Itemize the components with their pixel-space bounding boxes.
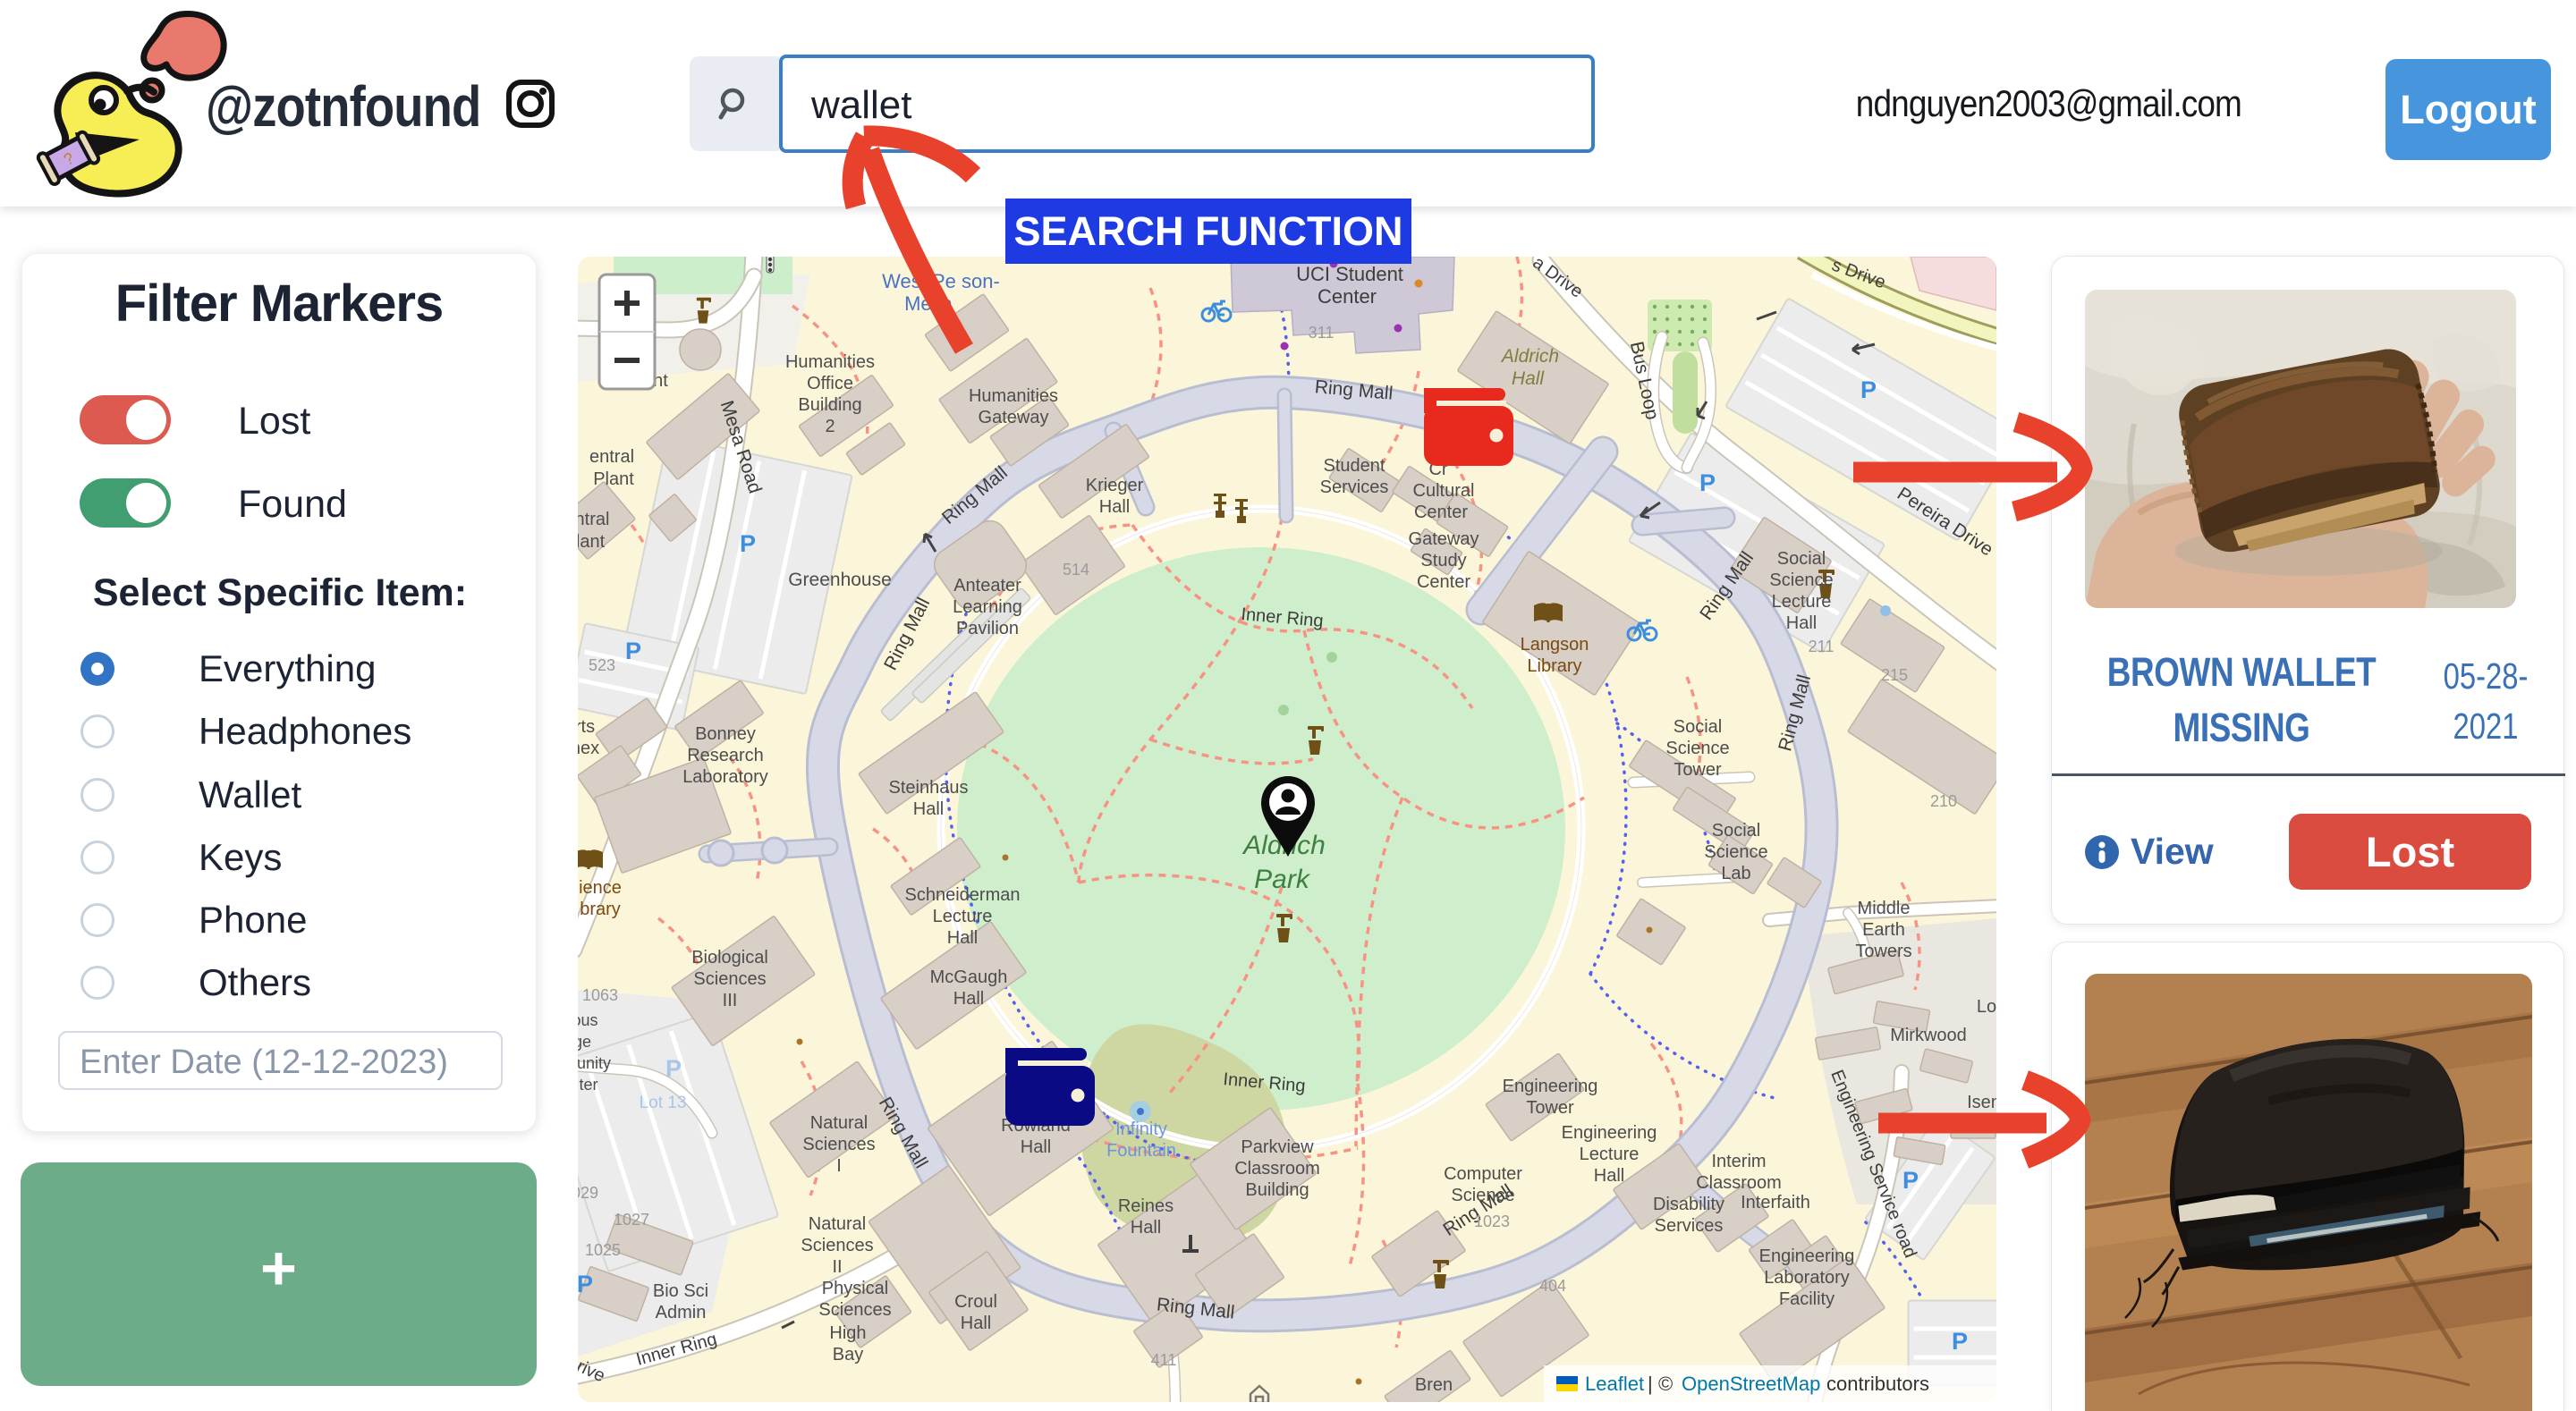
svg-text:Biological: Biological	[691, 948, 768, 967]
svg-text:Social: Social	[1674, 717, 1722, 737]
svg-text:McGaugh: McGaugh	[930, 967, 1008, 987]
svg-text:Lecture: Lecture	[1580, 1145, 1640, 1164]
svg-text:Social: Social	[1712, 821, 1760, 841]
svg-text:Infinity: Infinity	[1115, 1120, 1167, 1139]
svg-text:Hall: Hall	[961, 1314, 991, 1333]
svg-text:Disability: Disability	[1653, 1195, 1724, 1214]
svg-text:Sciences: Sciences	[818, 1300, 891, 1320]
svg-text:Interim: Interim	[1711, 1152, 1766, 1171]
svg-text:Laboratory: Laboratory	[682, 767, 768, 787]
svg-text:OpenStreetMap: OpenStreetMap	[1682, 1373, 1820, 1395]
svg-text:Lab: Lab	[1721, 864, 1750, 883]
svg-text:Science: Science	[1769, 570, 1833, 590]
svg-text:Towers: Towers	[1855, 942, 1911, 961]
svg-text:Hall: Hall	[913, 799, 944, 819]
svg-text:Bay: Bay	[833, 1345, 863, 1365]
svg-text:Langson: Langson	[1521, 635, 1589, 655]
svg-text:West Pe son-: West Pe son-	[882, 270, 1000, 292]
svg-text:1023: 1023	[1474, 1212, 1510, 1230]
svg-text:Fountain: Fountain	[1106, 1141, 1176, 1161]
svg-text:Facility: Facility	[1779, 1289, 1835, 1309]
svg-text:Research: Research	[687, 746, 764, 765]
svg-text:Park: Park	[1254, 865, 1311, 894]
svg-text:1027: 1027	[614, 1211, 649, 1229]
svg-text:210: 210	[1930, 792, 1957, 810]
svg-text:Center: Center	[1318, 285, 1377, 308]
svg-text:Gateway: Gateway	[1409, 529, 1479, 549]
svg-text:Tower: Tower	[1674, 760, 1722, 780]
svg-text:I: I	[836, 1156, 842, 1176]
svg-text:514: 514	[1063, 561, 1089, 579]
svg-text:nex: nex	[578, 739, 599, 758]
svg-text:brary: brary	[580, 900, 621, 919]
svg-text:High: High	[829, 1323, 866, 1343]
svg-text:Hall: Hall	[1594, 1166, 1624, 1186]
svg-text:Building: Building	[1245, 1180, 1309, 1200]
svg-text:II: II	[832, 1257, 842, 1277]
svg-text:Engineering: Engineering	[1759, 1246, 1855, 1266]
svg-text:Sciences: Sciences	[802, 1135, 875, 1154]
svg-text:Interfaith: Interfaith	[1741, 1193, 1810, 1212]
svg-text:Anteater: Anteater	[953, 576, 1021, 596]
svg-text:Hall: Hall	[1512, 368, 1546, 389]
svg-text:Middle: Middle	[1858, 899, 1911, 918]
svg-text:Pavilion: Pavilion	[956, 619, 1019, 638]
svg-text:Lecture: Lecture	[933, 907, 993, 926]
svg-text:411: 411	[1151, 1351, 1177, 1369]
svg-text:Engineering: Engineering	[1562, 1123, 1657, 1143]
svg-text:Croul: Croul	[954, 1292, 997, 1312]
svg-text:Plant: Plant	[593, 469, 634, 489]
svg-text:215: 215	[1881, 666, 1908, 684]
svg-text:Services: Services	[1655, 1216, 1724, 1236]
svg-text:unity: unity	[578, 1054, 611, 1072]
svg-text:Computer: Computer	[1444, 1164, 1522, 1184]
svg-text:Hall: Hall	[1099, 497, 1130, 517]
svg-text:Sciences: Sciences	[801, 1236, 873, 1255]
svg-text:Science: Science	[1665, 739, 1729, 758]
svg-text:Lo: Lo	[1977, 997, 1996, 1017]
svg-text:1025: 1025	[585, 1241, 621, 1259]
svg-text:211: 211	[1809, 638, 1835, 655]
svg-text:P: P	[625, 638, 641, 664]
svg-text:2: 2	[825, 417, 835, 436]
svg-text:Physical: Physical	[822, 1279, 888, 1298]
svg-text:Hall: Hall	[1131, 1218, 1161, 1238]
svg-text:©: ©	[1658, 1373, 1673, 1395]
svg-text:Humanities: Humanities	[785, 352, 875, 372]
svg-text:P: P	[1860, 376, 1877, 403]
svg-text:P: P	[1952, 1328, 1968, 1355]
svg-text:1063: 1063	[582, 986, 618, 1004]
svg-text:P: P	[1902, 1167, 1919, 1194]
svg-text:311: 311	[1309, 324, 1335, 342]
svg-text:Services: Services	[1320, 477, 1389, 497]
svg-text:029: 029	[578, 1184, 598, 1202]
svg-text:Admin: Admin	[656, 1303, 707, 1322]
svg-text:Mirkwood: Mirkwood	[1890, 1026, 1967, 1045]
svg-text:Center: Center	[1417, 572, 1470, 592]
svg-text:Parkview: Parkview	[1241, 1137, 1314, 1157]
svg-text:Natural: Natural	[809, 1214, 866, 1234]
svg-text:Mesa: Mesa	[904, 292, 953, 315]
svg-text:UCI Student: UCI Student	[1296, 263, 1403, 285]
svg-text:Isen: Isen	[1967, 1093, 1996, 1112]
svg-text:Engineering: Engineering	[1503, 1077, 1598, 1096]
svg-text:Leaflet: Leaflet	[1585, 1373, 1644, 1395]
svg-text:P: P	[1699, 469, 1716, 496]
svg-text:P: P	[578, 1271, 593, 1297]
svg-text:Science: Science	[1451, 1186, 1514, 1205]
svg-text:Hall: Hall	[953, 989, 984, 1009]
svg-text:Steinhaus: Steinhaus	[889, 778, 969, 798]
svg-text:ous: ous	[578, 1011, 598, 1029]
svg-text:contributors: contributors	[1826, 1373, 1929, 1395]
svg-text:ge: ge	[578, 1033, 591, 1051]
svg-text:404: 404	[1539, 1277, 1566, 1295]
svg-text:Aldrich: Aldrich	[1500, 346, 1559, 367]
svg-text:Center: Center	[1414, 503, 1468, 522]
svg-text:ntral: ntral	[578, 510, 609, 529]
svg-text:Gateway: Gateway	[979, 408, 1049, 427]
svg-text:Library: Library	[1527, 656, 1581, 676]
svg-text:lant: lant	[578, 532, 606, 552]
svg-text:ter: ter	[579, 1076, 597, 1094]
svg-text:Bonney: Bonney	[695, 724, 756, 744]
svg-text:Learning: Learning	[953, 597, 1022, 617]
svg-text:Cultural: Cultural	[1413, 481, 1475, 501]
svg-text:|: |	[1648, 1373, 1653, 1395]
svg-text:ience: ience	[579, 878, 622, 898]
svg-text:Bio Sci: Bio Sci	[653, 1281, 708, 1301]
svg-text:Tower: Tower	[1526, 1098, 1574, 1118]
svg-text:Classroom: Classroom	[1696, 1173, 1782, 1193]
svg-text:Earth: Earth	[1862, 920, 1905, 940]
svg-text:Hall: Hall	[1786, 613, 1817, 633]
svg-text:Lot 13: Lot 13	[640, 1094, 687, 1112]
svg-text:Building: Building	[798, 395, 861, 415]
svg-text:P: P	[665, 1055, 682, 1082]
svg-text:Study: Study	[1420, 551, 1466, 570]
svg-text:Social: Social	[1777, 549, 1826, 569]
svg-text:Science: Science	[1704, 842, 1767, 862]
svg-text:Classroom: Classroom	[1234, 1159, 1320, 1179]
svg-text:Bren: Bren	[1415, 1375, 1453, 1395]
svg-text:Greenhouse: Greenhouse	[788, 570, 892, 590]
svg-text:Schneiderman: Schneiderman	[905, 885, 1021, 905]
svg-text:Lecture: Lecture	[1772, 592, 1832, 612]
svg-text:rts: rts	[578, 717, 595, 737]
svg-text:Hall: Hall	[1021, 1137, 1051, 1157]
svg-text:Krieger: Krieger	[1086, 476, 1144, 495]
svg-text:P: P	[740, 530, 756, 557]
svg-text:Natural: Natural	[810, 1113, 868, 1133]
svg-text:523: 523	[589, 656, 615, 674]
svg-text:Laboratory: Laboratory	[1764, 1268, 1850, 1288]
svg-text:Humanities: Humanities	[969, 386, 1058, 406]
svg-text:III: III	[723, 991, 738, 1010]
svg-text:Hall: Hall	[947, 928, 978, 948]
svg-text:Office: Office	[807, 374, 853, 393]
svg-text:entral: entral	[589, 447, 634, 467]
svg-text:Student: Student	[1324, 456, 1385, 476]
svg-text:Sciences: Sciences	[693, 969, 766, 989]
svg-text:Reines: Reines	[1118, 1196, 1174, 1216]
